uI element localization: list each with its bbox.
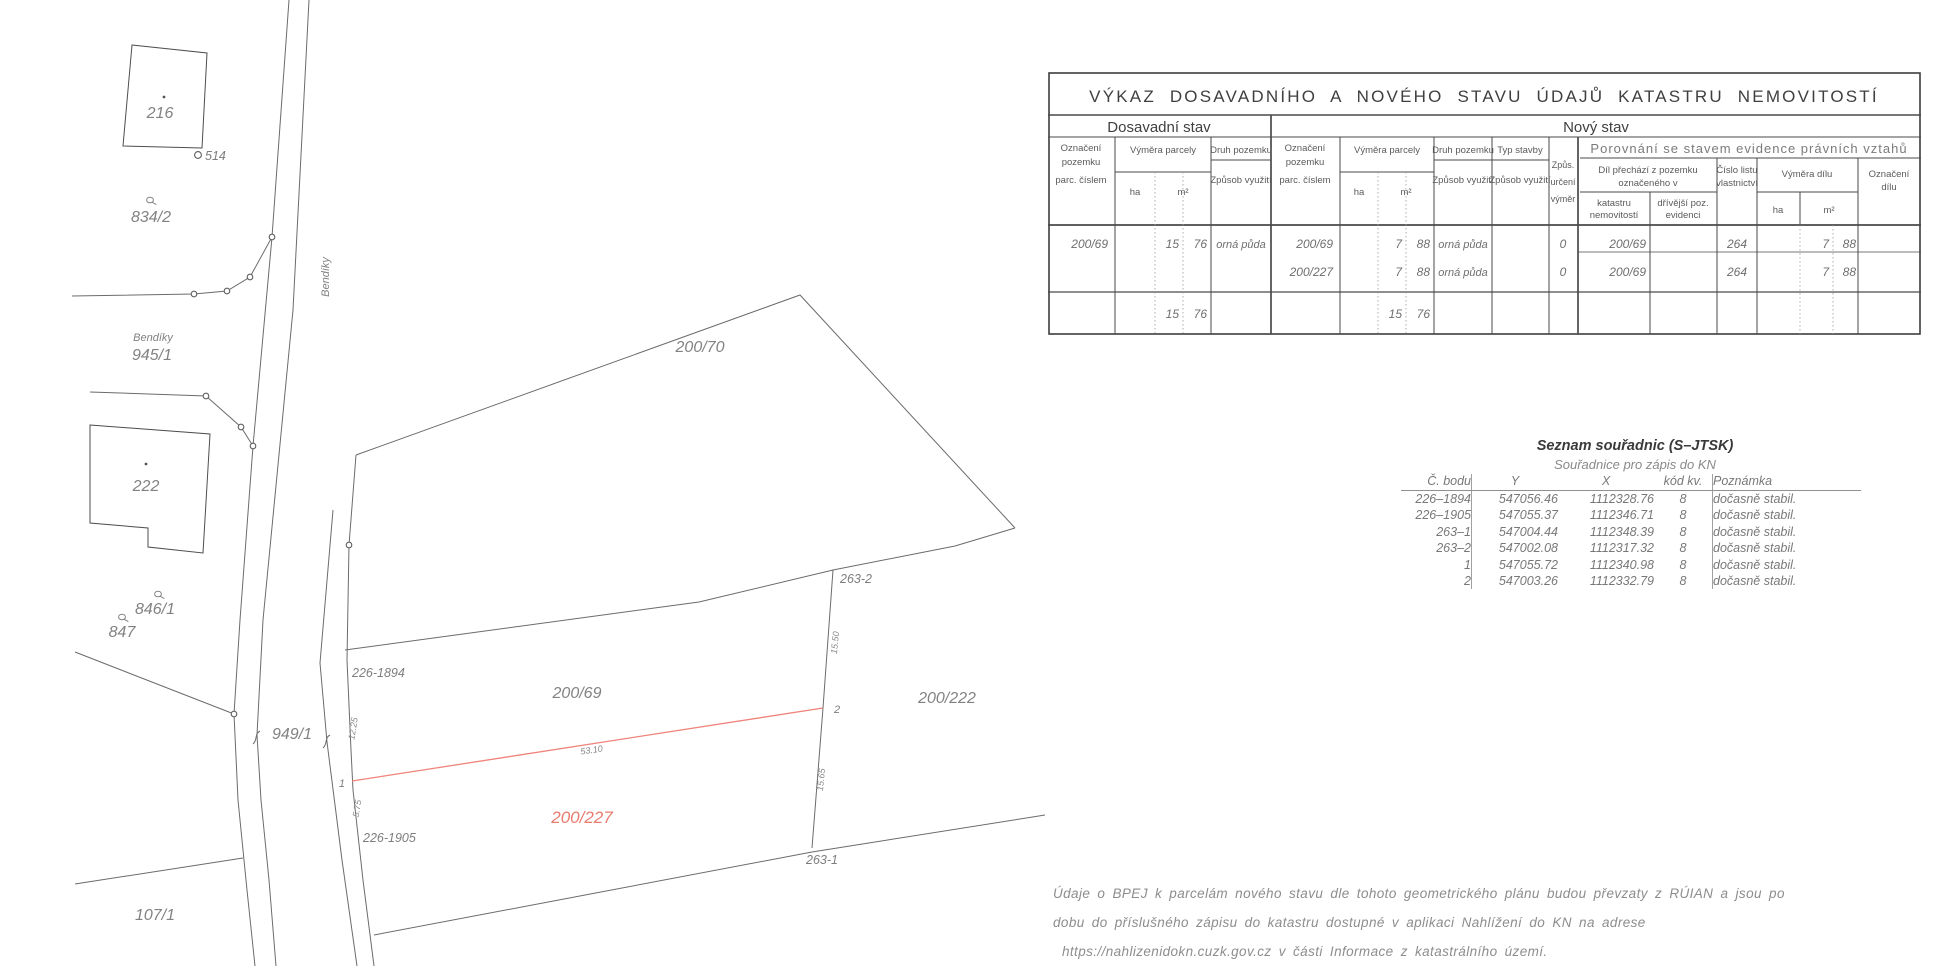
measure-12-25: 12.25 — [346, 716, 360, 741]
boundary-north-200-70 — [356, 295, 1015, 528]
point-circle-c — [247, 274, 253, 280]
col-m2-dil: m² — [1823, 205, 1834, 216]
coords-header-bodu: Č. bodu — [1401, 474, 1472, 491]
label-bendiky-area: Bendíky — [133, 332, 174, 344]
old-state-header: Dosavadní stav — [1107, 119, 1211, 136]
row1-new-m2b: 88 — [1417, 237, 1431, 251]
col-drive-2: evidenci — [1666, 210, 1701, 221]
col-m2-old: m² — [1177, 187, 1188, 198]
label-road-bendiky: Bendíky — [320, 256, 332, 297]
coords-cell-x: 1112328.76 — [1558, 491, 1654, 508]
coords-row: 1 547055.72 1112340.98 8 dočasně stabil. — [1401, 557, 1861, 573]
col-ozn-old-3: parc. číslem — [1055, 175, 1106, 186]
label-pt-263-1: 263-1 — [805, 853, 838, 867]
coords-cell-x: 1112340.98 — [1558, 557, 1654, 573]
row2-new-druh: orná půda — [1438, 267, 1488, 279]
col-m2-new: m² — [1400, 187, 1411, 198]
col-clv-1: Číslo listu — [1716, 165, 1757, 176]
coords-row: 263–2 547002.08 1112317.32 8 dočasně sta… — [1401, 540, 1861, 556]
col-ozn-new-2: pozemku — [1286, 157, 1325, 168]
road-left-edge — [234, 0, 289, 966]
row1-kat: 200/69 — [1608, 237, 1646, 251]
comparison-header: Porovnání se stavem evidence právních vz… — [1590, 141, 1907, 156]
col-ozndil-1: Označení — [1869, 169, 1910, 180]
col-vymdil: Výměra dílu — [1782, 169, 1833, 180]
row2-new-m2a: 7 — [1395, 265, 1403, 279]
coords-cell-kod: 8 — [1654, 557, 1713, 573]
label-pt-263-2: 263-2 — [839, 572, 872, 586]
row1-old-m2b: 76 — [1194, 237, 1208, 251]
coords-title: Seznam souřadnic (S–JTSK) — [1395, 438, 1875, 454]
label-847: 847 — [109, 624, 137, 641]
row2-dil-m2b: 88 — [1843, 265, 1857, 279]
landuse-symbol-847 — [119, 614, 129, 621]
label-200-70: 200/70 — [675, 339, 725, 356]
row1-zpus: 0 — [1560, 237, 1567, 251]
coords-cell-x: 1112348.39 — [1558, 524, 1654, 540]
coords-cell-x: 1112346.71 — [1558, 507, 1654, 523]
col-druh-old: Druh pozemku — [1210, 145, 1272, 156]
bpej-note-line2: dobu do příslušného zápisu do katastru d… — [1053, 915, 1933, 944]
measure-15-50: 15.50 — [829, 631, 841, 654]
coords-header-note: Poznámka — [1713, 474, 1862, 491]
measure-15-65: 15.65 — [815, 767, 827, 791]
col-kat-1: katastru — [1597, 198, 1631, 209]
label-222: 222 — [132, 478, 160, 495]
label-pt-1: 1 — [339, 778, 345, 790]
row1-dil-m2b: 88 — [1843, 237, 1857, 251]
point-circle-g — [250, 443, 256, 449]
point-circle-846 — [231, 711, 237, 717]
table-outer-border — [1049, 73, 1920, 334]
row2-new-parcel: 200/227 — [1289, 265, 1335, 279]
vykaz-title: VÝKAZ DOSAVADNÍHO A NOVÉHO STAVU ÚDAJŮ K… — [1089, 87, 1879, 106]
point-circle-e — [203, 393, 209, 399]
col-zpusob-old: Způsob využití — [1210, 175, 1272, 186]
point-circle-f — [238, 424, 244, 430]
row2-zpus: 0 — [1560, 265, 1567, 279]
boundary-846-847 — [75, 652, 234, 714]
coords-header-y: Y — [1472, 474, 1559, 491]
point-circle-a — [191, 291, 197, 297]
coords-cell-x: 1112332.79 — [1558, 573, 1654, 589]
vykaz-table: VÝKAZ DOSAVADNÍHO A NOVÉHO STAVU ÚDAJŮ K… — [1048, 72, 1921, 335]
coords-cell-y: 547002.08 — [1472, 540, 1559, 556]
new-state-header: Nový stav — [1563, 119, 1629, 136]
label-pt-2: 2 — [833, 704, 840, 716]
label-200-222: 200/222 — [917, 690, 976, 707]
landuse-symbol-834 — [147, 197, 157, 204]
col-ozn-new-3: parc. číslem — [1279, 175, 1330, 186]
col-ha-dil: ha — [1773, 205, 1784, 216]
road-right-edge — [347, 455, 374, 966]
coords-table: Č. bodu Y X kód kv. Poznámka 226–1894 54… — [1401, 474, 1861, 589]
col-ha-old: ha — [1130, 187, 1141, 198]
coords-cell-note: dočasně stabil. — [1713, 573, 1862, 589]
coords-header-x: X — [1558, 474, 1654, 491]
coords-cell-id: 1 — [1401, 557, 1472, 573]
coords-cell-kod: 8 — [1654, 573, 1713, 589]
landuse-symbol-846 — [155, 591, 165, 598]
coords-cell-y: 547055.72 — [1472, 557, 1559, 573]
row2-kat: 200/69 — [1608, 265, 1646, 279]
col-zpusob-typ: Způsob využití — [1489, 175, 1551, 186]
row1-old-druh: orná půda — [1216, 239, 1266, 251]
measure-53-10: 53.10 — [580, 743, 604, 756]
label-200-69: 200/69 — [552, 685, 602, 702]
coords-subtitle: Souřadnice pro zápis do KN — [1395, 457, 1875, 472]
coords-cell-id: 2 — [1401, 573, 1472, 589]
row1-new-parcel: 200/69 — [1295, 237, 1333, 251]
coords-row: 263–1 547004.44 1112348.39 8 dočasně sta… — [1401, 524, 1861, 540]
point-circle-road — [346, 542, 352, 548]
col-ozndil-2: dílu — [1881, 182, 1896, 193]
coords-cell-note: dočasně stabil. — [1713, 491, 1862, 508]
cadastral-plan-page: 216 514 834/2 Bendíky Bendíky 945/1 222 … — [0, 0, 1950, 966]
row1-dil-m2a: 7 — [1822, 237, 1830, 251]
bpej-note-line3: https://nahlizenidokn.cuzk.gov.cz v část… — [1053, 944, 1933, 966]
col-dil-1: Díl přechází z pozemku — [1598, 165, 1697, 176]
boundary-south-200-227 — [374, 815, 1045, 935]
coords-cell-id: 263–2 — [1401, 540, 1472, 556]
coords-cell-y: 547003.26 — [1472, 573, 1559, 589]
row1-old-parcel: 200/69 — [1070, 237, 1108, 251]
coords-cell-id: 263–1 — [1401, 524, 1472, 540]
coords-row: 226–1905 547055.37 1112346.71 8 dočasně … — [1401, 507, 1861, 523]
label-514: 514 — [205, 149, 226, 163]
coords-header-kod: kód kv. — [1654, 474, 1713, 491]
boundary-107 — [75, 858, 243, 884]
building-216-dot — [163, 96, 166, 99]
coords-cell-kod: 8 — [1654, 491, 1713, 508]
col-kat-2: nemovitostí — [1590, 210, 1639, 221]
label-846-1: 846/1 — [135, 601, 175, 618]
break-mark-left — [253, 731, 260, 744]
col-zpus-1: Způs. — [1552, 160, 1575, 170]
road-left-inner — [257, 0, 309, 966]
coords-row: 2 547003.26 1112332.79 8 dočasně stabil. — [1401, 573, 1861, 589]
col-ozn-old-2: pozemku — [1062, 157, 1101, 168]
coords-cell-note: dočasně stabil. — [1713, 557, 1862, 573]
col-ozn-new-1: Označení — [1285, 143, 1326, 154]
row2-dil-m2a: 7 — [1822, 265, 1830, 279]
coordinate-list: Seznam souřadnic (S–JTSK) Souřadnice pro… — [1395, 438, 1875, 589]
col-ozn-old-1: Označení — [1061, 143, 1102, 154]
row1-old-m2a: 15 — [1166, 237, 1180, 251]
coords-cell-id: 226–1894 — [1401, 491, 1472, 508]
coords-row: 226–1894 547056.46 1112328.76 8 dočasně … — [1401, 491, 1861, 508]
col-vymera-new: Výměra parcely — [1354, 145, 1420, 156]
col-zpus-3: výměr — [1551, 194, 1576, 204]
col-vymera-old: Výměra parcely — [1130, 145, 1196, 156]
sum-new-m2b: 76 — [1417, 307, 1431, 321]
coords-cell-y: 547004.44 — [1472, 524, 1559, 540]
col-ha-new: ha — [1354, 187, 1365, 198]
row1-clv: 264 — [1726, 237, 1747, 251]
boundary-chain-upper — [72, 237, 272, 296]
coords-cell-note: dočasně stabil. — [1713, 507, 1862, 523]
coords-cell-kod: 8 — [1654, 524, 1713, 540]
label-pt-226-1894: 226-1894 — [351, 666, 405, 680]
col-clv-2: vlastnictví — [1716, 178, 1758, 189]
row2-new-m2b: 88 — [1417, 265, 1431, 279]
new-boundary-red-line — [352, 708, 823, 781]
row1-new-druh: orná půda — [1438, 239, 1488, 251]
bpej-note-line1: Údaje o BPEJ k parcelám nového stavu dle… — [1053, 886, 1933, 915]
col-dil-2: označeného v — [1618, 178, 1677, 189]
bpej-note: Údaje o BPEJ k parcelám nového stavu dle… — [1053, 886, 1933, 966]
label-107-1: 107/1 — [135, 907, 175, 924]
col-zpus-2: určení — [1550, 177, 1576, 187]
row1-new-m2a: 7 — [1395, 237, 1403, 251]
coords-cell-kod: 8 — [1654, 507, 1713, 523]
row2-clv: 264 — [1726, 265, 1747, 279]
coords-cell-note: dočasně stabil. — [1713, 524, 1862, 540]
coords-cell-y: 547055.37 — [1472, 507, 1559, 523]
cadastral-map: 216 514 834/2 Bendíky Bendíky 945/1 222 … — [0, 0, 1050, 966]
sum-old-m2a: 15 — [1166, 307, 1180, 321]
label-945-1: 945/1 — [132, 347, 172, 364]
coords-cell-y: 547056.46 — [1472, 491, 1559, 508]
label-949-1: 949/1 — [272, 726, 312, 743]
point-circle-b — [224, 288, 230, 294]
coords-cell-kod: 8 — [1654, 540, 1713, 556]
col-typ-stavby: Typ stavby — [1497, 145, 1543, 156]
sum-new-m2a: 15 — [1389, 307, 1403, 321]
point-circle-d — [269, 234, 275, 240]
label-pt-226-1905: 226-1905 — [362, 831, 416, 845]
label-834-2: 834/2 — [131, 209, 171, 226]
boundary-chain-945 — [90, 392, 253, 446]
measure-5-75: 5.75 — [351, 798, 364, 818]
coords-cell-x: 1112317.32 — [1558, 540, 1654, 556]
sum-old-m2b: 76 — [1194, 307, 1208, 321]
building-222-dot — [145, 463, 148, 466]
label-216: 216 — [146, 105, 174, 122]
col-zpusob-new: Způsob využití — [1432, 175, 1494, 186]
col-drive-1: dřívější poz. — [1657, 198, 1708, 209]
coords-cell-note: dočasně stabil. — [1713, 540, 1862, 556]
boundary-north-200-69 — [345, 528, 1015, 650]
col-druh-new: Druh pozemku — [1432, 145, 1494, 156]
coords-cell-id: 226–1905 — [1401, 507, 1472, 523]
point-514-circle — [195, 152, 202, 159]
label-200-227: 200/227 — [550, 808, 613, 827]
